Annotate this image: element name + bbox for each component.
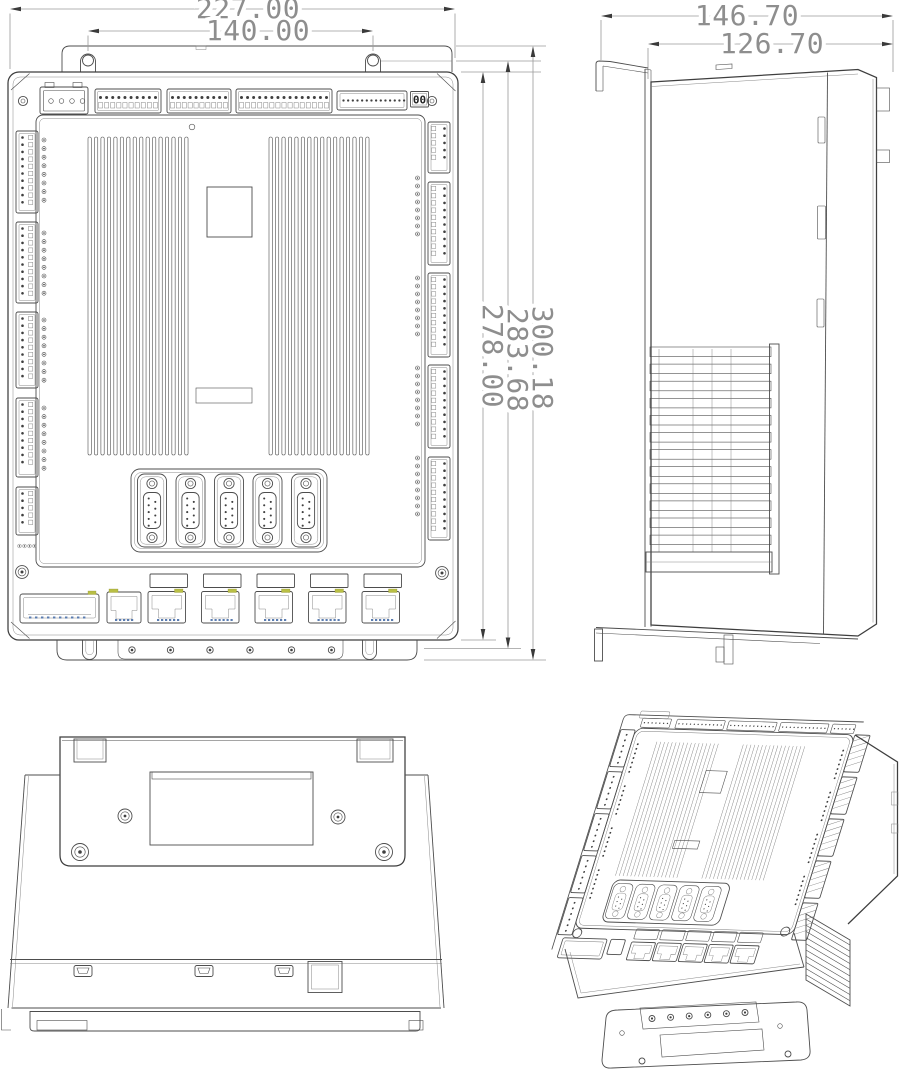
rear-bump [877,88,890,111]
top-terminal-blocks [95,89,407,113]
iso-heatsink-fins [806,914,850,1006]
dim-body-depth: 126.70 [720,27,824,60]
db9-serial-panel [131,469,327,552]
side-heatsink [646,344,779,574]
dim-mount-hole-spacing: 140.00 [206,14,310,47]
usb-port [195,966,213,977]
left-terminal-blocks [16,131,38,535]
side-view: 146.70 126.70 [595,0,894,664]
side-slot [817,299,824,327]
plate-recess [150,772,313,845]
usb-port [275,966,293,977]
bottom-mounting-bracket [57,640,417,660]
front-dimensions: 227.00 140.00 278.00 283.68 300.18 [10,0,559,660]
corner-screws [16,96,449,579]
iso-front-face [549,711,875,966]
top-body [2,775,445,1031]
dim-overall-height: 300.18 [526,306,559,410]
top-view [2,737,445,1031]
ventilation-slots [88,137,369,455]
lower-recess [196,388,252,403]
panel-pilot-hole [189,124,195,130]
iso-mounting-plate [602,1002,810,1068]
drawing-page: 00 [0,0,900,1069]
iso-lower-chassis [565,933,804,998]
front-chassis [8,72,458,640]
side-slot [818,206,826,239]
side-bottom-bracket [595,628,859,665]
address-display: 00 [411,92,429,108]
bottom-port-row [20,574,402,623]
usb-port [74,966,92,977]
side-body [596,61,890,636]
power-connector [40,83,88,115]
label-recess [207,187,252,237]
right-terminal-blocks [428,122,450,540]
top-mount-plate [60,737,405,866]
front-view: 00 [8,0,559,660]
drawing-canvas: 00 [0,0,900,1069]
top-ports [74,962,342,993]
side-slot [818,117,825,143]
top-mounting-plate [62,46,452,72]
rear-bump [877,150,890,163]
isometric-view [549,711,898,1069]
address-display-value: 00 [413,94,426,107]
aux-led-row [18,544,37,548]
expansion-slot [308,962,342,993]
db9-connectors [138,474,321,547]
bracket-holes [129,647,335,653]
